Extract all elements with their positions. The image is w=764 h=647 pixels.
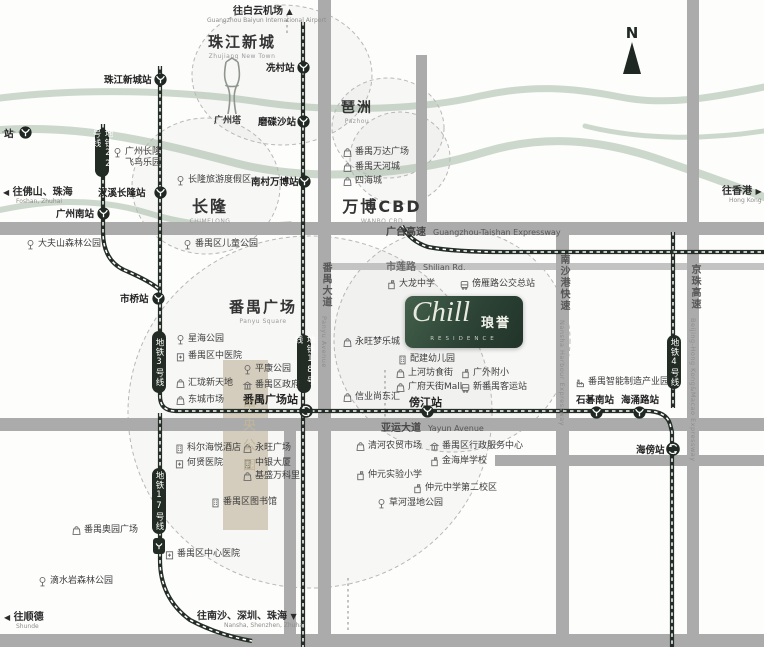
bag-icon — [342, 147, 353, 158]
gov-icon — [242, 380, 253, 391]
building-icon — [397, 354, 408, 365]
district-label: 万博CBDWANBO CBD — [342, 193, 421, 225]
road-label: 广台高速Guangzhou-Taishan Expressway — [386, 223, 561, 238]
poi-label: 长隆旅游度假区 — [188, 175, 251, 186]
district-name: 万博CBD — [342, 193, 421, 217]
metro-station-label: 南村万博站 — [251, 174, 299, 188]
district-label: 琶洲Pazhou — [341, 97, 373, 125]
metro-station-icon — [152, 292, 165, 305]
direction-text: 往白云机场 — [233, 6, 283, 17]
building-icon — [210, 497, 221, 508]
bag-icon — [71, 525, 82, 536]
poi-label: 番禺区图书馆 — [223, 497, 277, 508]
school-icon — [386, 279, 397, 290]
district-label: 珠江新城Zhujiang New Town — [208, 31, 276, 60]
poi-item: 广府天街Mall — [395, 382, 462, 393]
park-icon — [37, 576, 48, 587]
direction-text-en: Guangzhou Baiyun International Airport — [207, 17, 326, 24]
poi-label: 番禺天河城 — [355, 162, 400, 173]
poi-label: 番禺智能制造产业园 — [588, 377, 669, 388]
direction-label: ◀ 往顺德Shunde — [4, 608, 44, 630]
district-name-en: CHIMELONG — [190, 218, 231, 225]
map-canvas — [0, 0, 764, 647]
metro-station-icon — [298, 175, 311, 188]
road-name: 京珠高速 — [687, 264, 702, 310]
district-name-en: Panyu Square — [229, 318, 297, 325]
poi-label: 番禺区行政服务中心 — [442, 441, 523, 452]
poi-label: 广府天街Mall — [408, 382, 462, 393]
bag-icon — [342, 176, 353, 187]
poi-item: 四海城 — [342, 176, 382, 187]
direction-text-en: Nansha, Shenzhen, Zhuhai — [224, 622, 305, 629]
poi-item: 平康公园 — [242, 364, 291, 375]
road-name-en: Beijing-Hong Kong&Macao Expressway — [689, 318, 697, 462]
poi-item: 广州长隆飞鸟乐园 — [112, 147, 161, 170]
poi-item: 永旺梦乐城 — [342, 337, 400, 348]
bag-icon — [175, 395, 186, 406]
poi-item: 大龙中学 — [386, 279, 435, 290]
compass-north-label: N — [620, 24, 644, 42]
poi-label: 番禺区中医院 — [188, 351, 242, 362]
poi-item: 金海岸学校 — [429, 456, 487, 467]
metro-station-icon — [633, 406, 646, 419]
direction-text: 往香港 — [722, 186, 752, 197]
metro-station-label: 站 — [4, 126, 14, 140]
metro-line-badge: 地铁17号线 — [152, 468, 166, 534]
direction-text: 往佛山、珠海 — [13, 187, 73, 198]
poi-item: 番禺区行政服务中心 — [429, 441, 523, 452]
bag-icon — [175, 378, 186, 389]
road-name: 南沙港快速 — [556, 254, 571, 312]
factory-icon — [575, 377, 586, 388]
bus-icon — [459, 279, 470, 290]
bag-icon — [342, 392, 353, 403]
poi-label: 仲元实验小学 — [368, 470, 422, 481]
direction-label: 往白云机场 ▲Guangzhou Baiyun International Ai… — [233, 2, 326, 24]
direction-arrow-icon: ▶ — [755, 187, 761, 196]
direction-text-en: Foshan, Zhuhai — [16, 198, 73, 205]
direction-arrow-icon: ◀ — [4, 613, 10, 622]
metro-station-icon — [297, 61, 310, 74]
park-icon — [112, 147, 123, 158]
poi-item: 仲元实验小学 — [355, 470, 422, 481]
direction-arrow-icon: ▲ — [286, 7, 292, 16]
gov-icon — [429, 441, 440, 452]
poi-item: 番禺智能制造产业园 — [575, 377, 669, 388]
direction-label: ◀ 往佛山、珠海Foshan, Zhuhai — [3, 183, 73, 205]
poi-item: 番禺万达广场 — [342, 147, 409, 158]
poi-label: 番禺万达广场 — [355, 147, 409, 158]
poi-label: 科尔海悦酒店 — [187, 443, 241, 454]
district-label: 番禺广场Panyu Square — [229, 296, 297, 325]
road-name: 广台高速 — [386, 227, 426, 238]
poi-label: 金海岸学校 — [442, 456, 487, 467]
poi-label: 广州塔 — [214, 116, 241, 127]
poi-label: 清河农贸市场 — [368, 441, 422, 452]
poi-item: 配建幼儿园 — [397, 354, 455, 365]
district-name: 长隆 — [190, 193, 231, 217]
poi-item: 东城市场 — [175, 395, 224, 406]
road-name: 亚运大道 — [381, 423, 421, 434]
metro-station-icon — [154, 73, 167, 86]
poi-label: 新番禺客运站 — [473, 382, 527, 393]
direction-arrow-icon: ▼ — [290, 612, 296, 621]
metro-station-label: 海涌路站 — [621, 392, 659, 406]
hospital-icon — [175, 351, 186, 362]
school-icon — [429, 456, 440, 467]
park-icon — [242, 364, 253, 375]
poi-label: 番禺奥园广场 — [84, 525, 138, 536]
poi-label: 番禺区儿童公园 — [195, 239, 258, 250]
poi-label: 番禺区中心医院 — [177, 549, 240, 560]
poi-item: 科尔海悦酒店 — [174, 443, 241, 454]
location-map: 地铁22号线地铁3号线地铁18号线地铁4号线地铁17号线站珠江新城站冼村站磨碟沙… — [0, 0, 764, 647]
metro-station-label: 汉溪长隆站 — [98, 185, 146, 199]
poi-label: 永旺广场 — [255, 443, 291, 454]
metro-station-icon — [19, 126, 32, 139]
project-logo: Chill 琅誉 RESIDENCE — [405, 296, 523, 348]
metro-station-label: 冼村站 — [266, 60, 295, 74]
poi-label: 仲元中学第二校区 — [425, 483, 497, 494]
central-park-label: 中央公园 — [238, 398, 257, 478]
canton-tower-label: 广州塔 — [214, 116, 241, 127]
poi-label: 四海城 — [355, 176, 382, 187]
hospital-icon — [164, 549, 175, 560]
district-name: 琶洲 — [341, 97, 373, 117]
road — [495, 455, 764, 466]
poi-label: 傍雁路公交总站 — [472, 279, 535, 290]
river-path — [585, 126, 764, 137]
poi-label: 配建幼儿园 — [410, 354, 455, 365]
park-icon — [182, 239, 193, 250]
district-name-en: Zhujiang New Town — [208, 53, 276, 60]
poi-item: 汇珑新天地 — [175, 378, 233, 389]
poi-label: 中银大厦 — [255, 458, 291, 469]
poi-item: 仲元中学第二校区 — [412, 483, 497, 494]
road-name: 番禺大道 — [318, 262, 333, 308]
metro-line-badge: 地铁3号线 — [152, 331, 166, 393]
project-logo-name: 琅誉 — [481, 312, 511, 331]
poi-label: 上河坊食街 — [408, 368, 453, 379]
poi-label: 平康公园 — [255, 364, 291, 375]
park-icon — [175, 334, 186, 345]
metro-station-label: 珠江新城站 — [104, 72, 152, 86]
poi-item: 信业尚东汇 — [342, 392, 400, 403]
poi-label: 东城市场 — [188, 395, 224, 406]
poi-label: 番禺区政府 — [255, 380, 300, 391]
poi-item: 番禺区政府 — [242, 380, 300, 391]
metro-station-label: 市桥站 — [120, 291, 149, 305]
direction-text-en: Hong Kong — [729, 197, 762, 204]
school-icon — [412, 483, 423, 494]
metro-line-badge: 地铁22号线 — [95, 129, 109, 177]
metro-station-label: 海傍站 — [636, 442, 665, 456]
metro-station-icon — [297, 115, 310, 128]
road-label: 亚运大道Yayun Avenue — [381, 419, 484, 434]
poi-item: 傍雁路公交总站 — [459, 279, 535, 290]
poi-item: 番禺区中医院 — [175, 351, 242, 362]
metro-station-label: 磨碟沙站 — [258, 114, 296, 128]
poi-label: 大夫山森林公园 — [38, 239, 101, 250]
poi-label: 广外附小 — [473, 368, 509, 379]
road-name-en: Yayun Avenue — [428, 424, 484, 433]
metro-station-icon — [666, 442, 679, 455]
bag-icon — [342, 337, 353, 348]
building-icon — [174, 443, 185, 454]
poi-item: 番禺天河城 — [342, 162, 400, 173]
poi-label: 广州长隆飞鸟乐园 — [125, 147, 161, 170]
metro-station-label: 石碁南站 — [576, 392, 614, 406]
poi-item: 何贤医院 — [174, 458, 223, 469]
district-name: 番禺广场 — [229, 296, 297, 317]
bag-icon — [342, 162, 353, 173]
poi-item: 广外附小 — [460, 368, 509, 379]
poi-label: 永旺梦乐城 — [355, 337, 400, 348]
district-label: 长隆CHIMELONG — [190, 193, 231, 225]
direction-label: 往香港 ▶Hong Kong — [722, 182, 762, 204]
poi-label: 滴水岩森林公园 — [50, 576, 113, 587]
poi-item: 番禺区儿童公园 — [182, 239, 258, 250]
direction-label: 往南沙、深圳、珠海 ▼Nansha, Shenzhen, Zhuhai — [197, 607, 305, 629]
poi-item: 长隆旅游度假区 — [175, 175, 251, 186]
poi-label: 基盛万科里 — [255, 471, 300, 482]
project-logo-subtitle: RESIDENCE — [405, 336, 523, 342]
poi-label: 信业尚东汇 — [355, 392, 400, 403]
road-name: 市莲路 — [386, 262, 416, 273]
road-label: 市莲路Shilian Rd. — [386, 258, 466, 273]
poi-item: 大夫山森林公园 — [25, 239, 101, 250]
school-icon — [355, 470, 366, 481]
metro-line-badge: 地铁4号线 — [667, 335, 681, 389]
direction-arrow-icon: ◀ — [3, 188, 9, 197]
park-icon — [25, 239, 36, 250]
district-name-en: Pazhou — [341, 118, 373, 125]
road-name-en: Guangzhou-Taishan Expressway — [433, 228, 561, 237]
poi-item: 番禺区图书馆 — [210, 497, 277, 508]
metro-station-icon — [590, 406, 603, 419]
park-icon — [175, 175, 186, 186]
poi-item: 新番禺客运站 — [460, 382, 527, 393]
project-logo-script: Chill — [412, 296, 470, 329]
hospital-icon — [174, 458, 185, 469]
poi-item: 番禺区中心医院 — [164, 549, 240, 560]
direction-text-en: Shunde — [16, 623, 44, 630]
compass-needle-icon — [623, 42, 641, 74]
road-name-en: Nansha Harbour Expressway — [558, 320, 566, 426]
poi-item: 上河坊食街 — [395, 368, 453, 379]
poi-label: 汇珑新天地 — [188, 378, 233, 389]
poi-label: 大龙中学 — [399, 279, 435, 290]
road-name-en: Panyu Avenue — [320, 316, 328, 368]
poi-item: 番禺奥园广场 — [71, 525, 138, 536]
park-icon — [376, 498, 387, 509]
metro-station-icon — [97, 207, 110, 220]
poi-label: 星海公园 — [188, 334, 224, 345]
metro-station-icon — [154, 186, 167, 199]
bag-icon — [355, 441, 366, 452]
metro-station-label: 傍江站 — [409, 394, 442, 410]
bag-icon — [395, 368, 406, 379]
poi-item: 草河湿地公园 — [376, 498, 443, 509]
poi-label: 何贤医院 — [187, 458, 223, 469]
district-name: 珠江新城 — [208, 31, 276, 52]
poi-item: 清河农贸市场 — [355, 441, 422, 452]
poi-item: 滴水岩森林公园 — [37, 576, 113, 587]
road — [0, 634, 764, 647]
road-name-en: Shilian Rd. — [423, 263, 466, 272]
poi-label: 草河湿地公园 — [389, 498, 443, 509]
poi-item: 星海公园 — [175, 334, 224, 345]
school-icon — [460, 368, 471, 379]
metro-station-label: 广州南站 — [56, 206, 94, 220]
bus-icon — [460, 382, 471, 393]
direction-text: 往南沙、深圳、珠海 — [197, 611, 287, 622]
metro-station-icon — [299, 404, 312, 417]
direction-text: 往顺德 — [14, 612, 44, 623]
